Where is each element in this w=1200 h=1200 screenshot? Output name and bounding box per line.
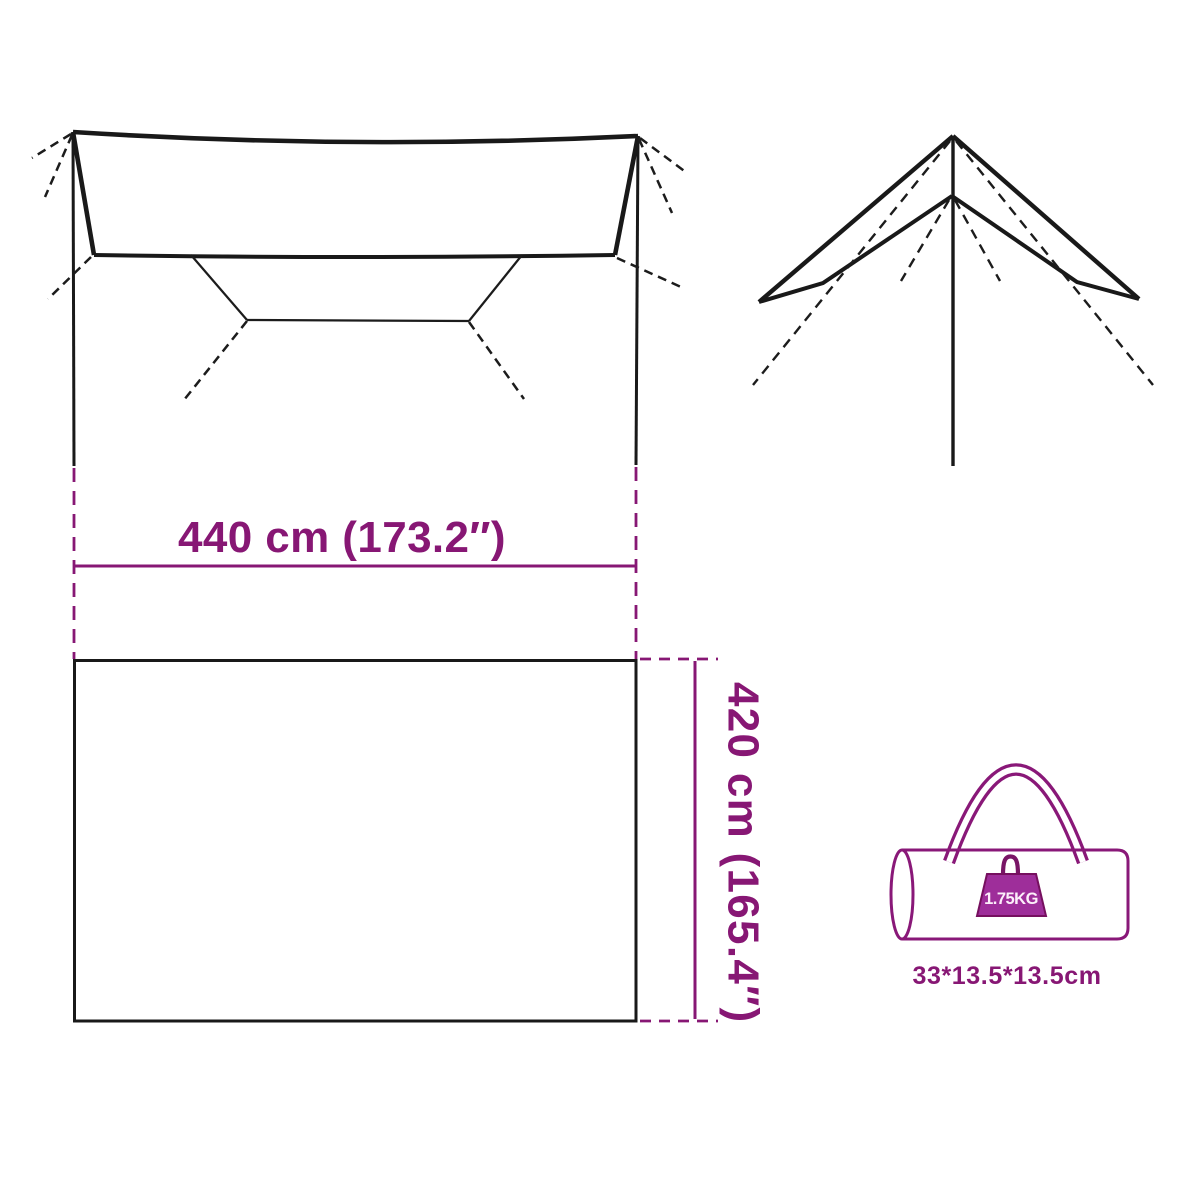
- svg-text:33*13.5*13.5cm: 33*13.5*13.5cm: [912, 962, 1101, 990]
- svg-text:1.75KG: 1.75KG: [984, 890, 1038, 908]
- svg-text:440 cm (173.2″): 440 cm (173.2″): [178, 513, 506, 562]
- svg-text:420 cm (165.4″): 420 cm (165.4″): [719, 682, 768, 1023]
